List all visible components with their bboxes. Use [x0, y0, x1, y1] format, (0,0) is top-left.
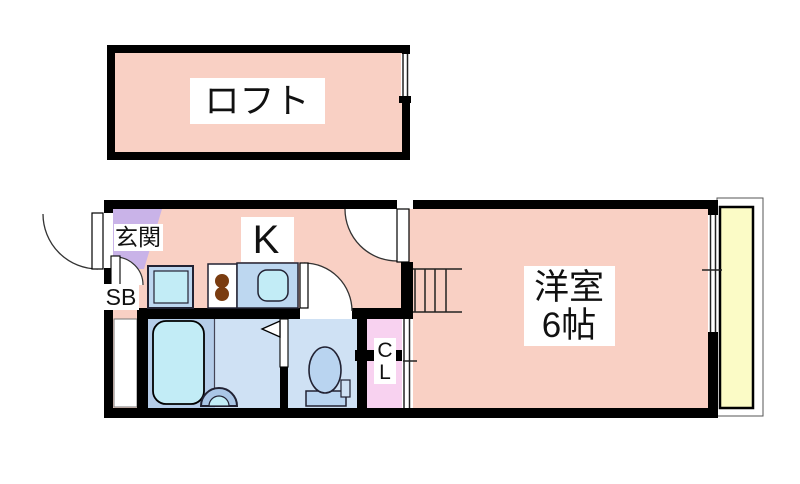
wall-top-right — [413, 200, 718, 209]
wall-bath-left — [137, 308, 148, 408]
shoebox-label: SB — [106, 284, 137, 310]
wall-top-left — [104, 200, 397, 209]
bathtub — [153, 321, 204, 404]
toilet-bowl — [309, 347, 341, 393]
entrance-door-arc — [43, 214, 98, 269]
main-floor: 玄関 SB K C L 洋室 6帖 — [43, 198, 763, 418]
wall-mid-horizontal-left — [137, 308, 300, 319]
toilet-door-leaf — [280, 319, 288, 367]
closet-label-c: C — [377, 339, 392, 362]
kitchen-door-leaf — [300, 263, 308, 308]
loft-window-sill — [399, 96, 411, 103]
room-window — [708, 215, 718, 332]
closet-label-l: L — [379, 361, 391, 384]
room-label-size: 6帖 — [542, 306, 596, 345]
kitchen-label: K — [253, 218, 280, 262]
wall-closet-left — [357, 319, 367, 408]
kitchen-left-unit-basin — [154, 271, 188, 303]
floorplan-canvas: ロフト — [0, 0, 800, 484]
stove-burner — [215, 287, 229, 301]
wall-right-lower — [708, 332, 718, 408]
entrance-label: 玄関 — [115, 224, 161, 250]
wall-kitchen-room-divider — [401, 262, 413, 312]
toilet-flush-box — [341, 380, 350, 397]
room-label-name: 洋室 — [534, 268, 604, 307]
entrance-door-leaf — [92, 213, 103, 269]
kitchen-sink — [258, 270, 288, 301]
floorplan-drawing: ロフト — [0, 0, 800, 484]
wall-right-upper — [708, 200, 718, 215]
wall-left-upper — [104, 200, 113, 213]
shoebox-door-leaf — [111, 256, 120, 285]
loft-room: ロフト — [107, 45, 411, 160]
room-door-leaf — [397, 209, 409, 262]
entry-step-strip — [114, 319, 137, 407]
wall-bottom — [104, 408, 718, 418]
stove-burner — [215, 274, 229, 288]
kitchen-counter — [148, 263, 298, 308]
loft-label: ロフト — [204, 82, 309, 121]
balcony-floor — [720, 207, 753, 408]
closet-door-stub-left — [355, 350, 377, 361]
wall-washroom-toilet — [280, 367, 288, 408]
